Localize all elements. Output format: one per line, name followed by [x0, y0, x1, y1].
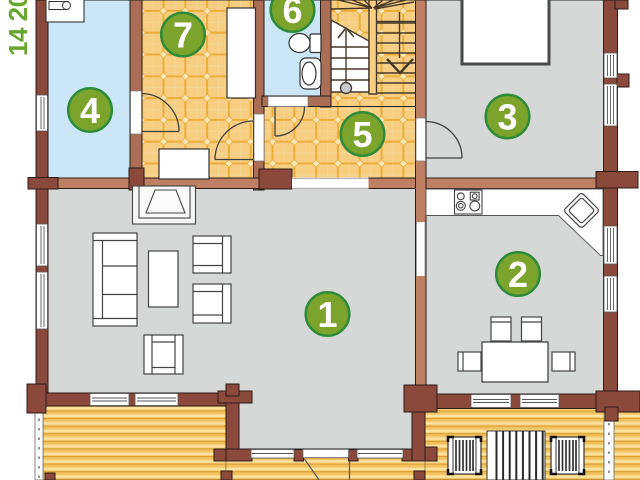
svg-text:14 20: 14 20: [3, 0, 33, 56]
svg-text:3: 3: [497, 97, 517, 138]
svg-text:6: 6: [282, 0, 302, 31]
svg-text:7: 7: [173, 15, 193, 56]
svg-text:5: 5: [352, 114, 372, 155]
svg-text:4: 4: [80, 90, 100, 131]
svg-text:2: 2: [508, 254, 528, 295]
svg-text:1: 1: [317, 294, 337, 335]
